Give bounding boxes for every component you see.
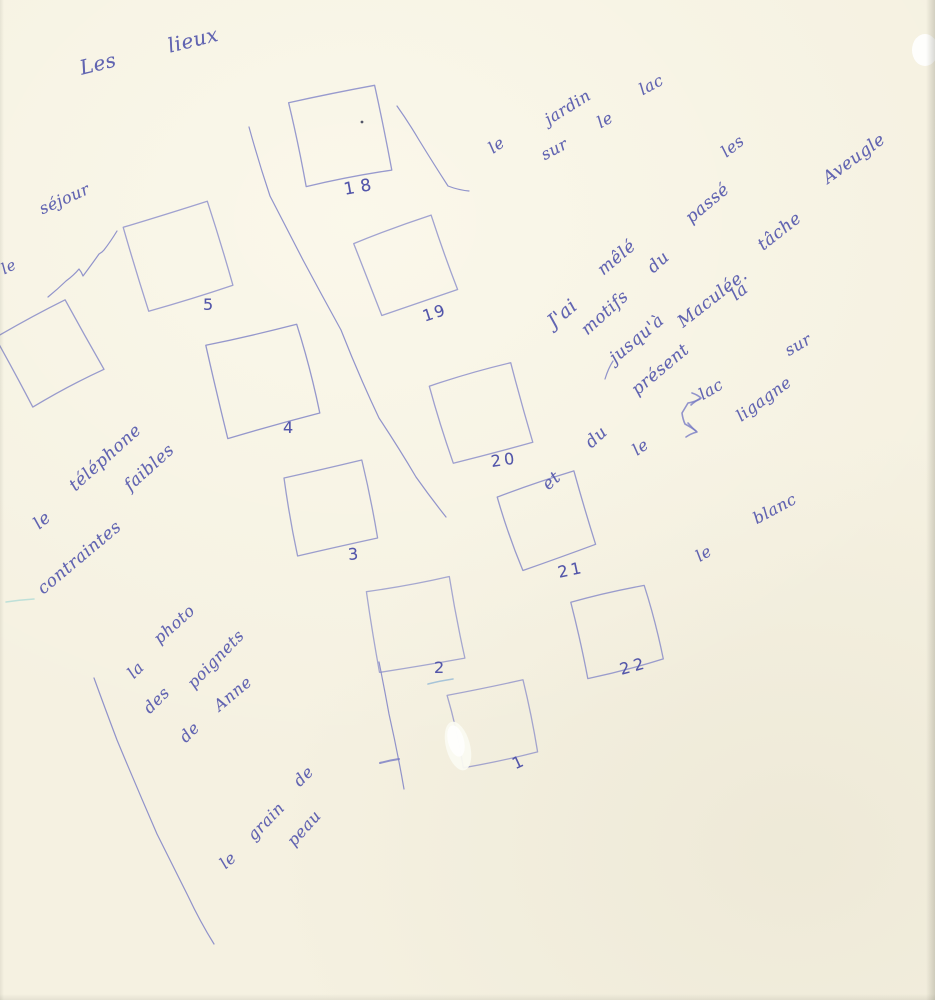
square-number-3: 3	[347, 544, 359, 564]
square-number-5: 5	[203, 295, 214, 314]
square-number-19: 19	[420, 300, 449, 326]
square-number-22: 22	[618, 653, 650, 679]
handwritten-word-lac-ligagne: ligagne	[732, 372, 795, 425]
paper-edge-left	[0, 0, 4, 1000]
square-number-1: 1	[509, 751, 527, 773]
handwritten-word-lac-lac: lac	[695, 375, 726, 404]
square-number-4: 4	[283, 418, 294, 437]
handwritten-word-title-word-les: Les	[77, 47, 119, 79]
handwritten-word-mele-mele: mêlé	[594, 236, 640, 279]
handwritten-word-photo-anne: Anne	[210, 672, 256, 715]
handwritten-word-mele-passe: passé	[682, 179, 734, 227]
handwritten-word-grain-de: de	[289, 762, 317, 790]
handwritten-word-jardin-le2: le	[594, 108, 617, 132]
handwritten-word-jardin-jardin: jardin	[541, 86, 594, 129]
handwritten-word-mele-tache: tâche	[754, 208, 806, 255]
handwritten-word-grain-grain: grain	[243, 798, 288, 844]
handwritten-word-note-sejour: séjour	[36, 179, 92, 218]
handwritten-word-blanc-blanc: blanc	[750, 489, 800, 528]
handwritten-word-photo-des: des	[139, 683, 173, 717]
handwritten-word-mele-du1: du	[643, 247, 673, 277]
paper-edge-shadow	[926, 0, 935, 1000]
handwritten-word-photo-la: la	[123, 658, 148, 683]
handwritten-word-jardin-le: le	[485, 133, 509, 158]
handwritten-word-mele-motifs: motifs	[577, 286, 632, 339]
handwritten-word-photo-photo: photo	[150, 601, 199, 648]
handwritten-word-jardin-sur: sur	[538, 134, 571, 164]
handwritten-word-mele-du2: du	[581, 422, 611, 452]
handwritten-word-mele-les: les	[717, 131, 748, 161]
handwritten-word-grain-peau: peau	[283, 806, 325, 850]
handwritten-word-blanc-le: le	[692, 541, 715, 565]
handwritten-word-jardin-lac: lac	[636, 70, 667, 99]
handwritten-word-tel-le: le	[30, 507, 55, 533]
handwritten-word-title-word-lieux: lieux	[165, 22, 221, 58]
handwritten-word-mele-et: et	[538, 467, 565, 494]
handwritten-word-photo-de: de	[175, 718, 203, 746]
handwritten-word-mele-jai: J'ai	[543, 294, 582, 332]
handwritten-word-mele-aveugle: Aveugle	[819, 129, 889, 188]
scanned-page: Leslieuxleséjourletéléphonecontraintesfa…	[0, 0, 935, 1000]
handwritten-word-grain-le: le	[216, 848, 240, 873]
square-number-2: 2	[434, 658, 445, 677]
square-number-21: 21	[556, 558, 586, 582]
square-number-20: 20	[490, 448, 519, 470]
handwritten-word-lac-le: le	[629, 435, 653, 460]
square-number-18: 18	[342, 174, 379, 200]
handwriting-layer: Leslieuxleséjourletéléphonecontraintesfa…	[0, 0, 935, 1000]
handwritten-word-lac-sur: sur	[781, 329, 814, 359]
paper-edge-bottom	[0, 994, 935, 1000]
